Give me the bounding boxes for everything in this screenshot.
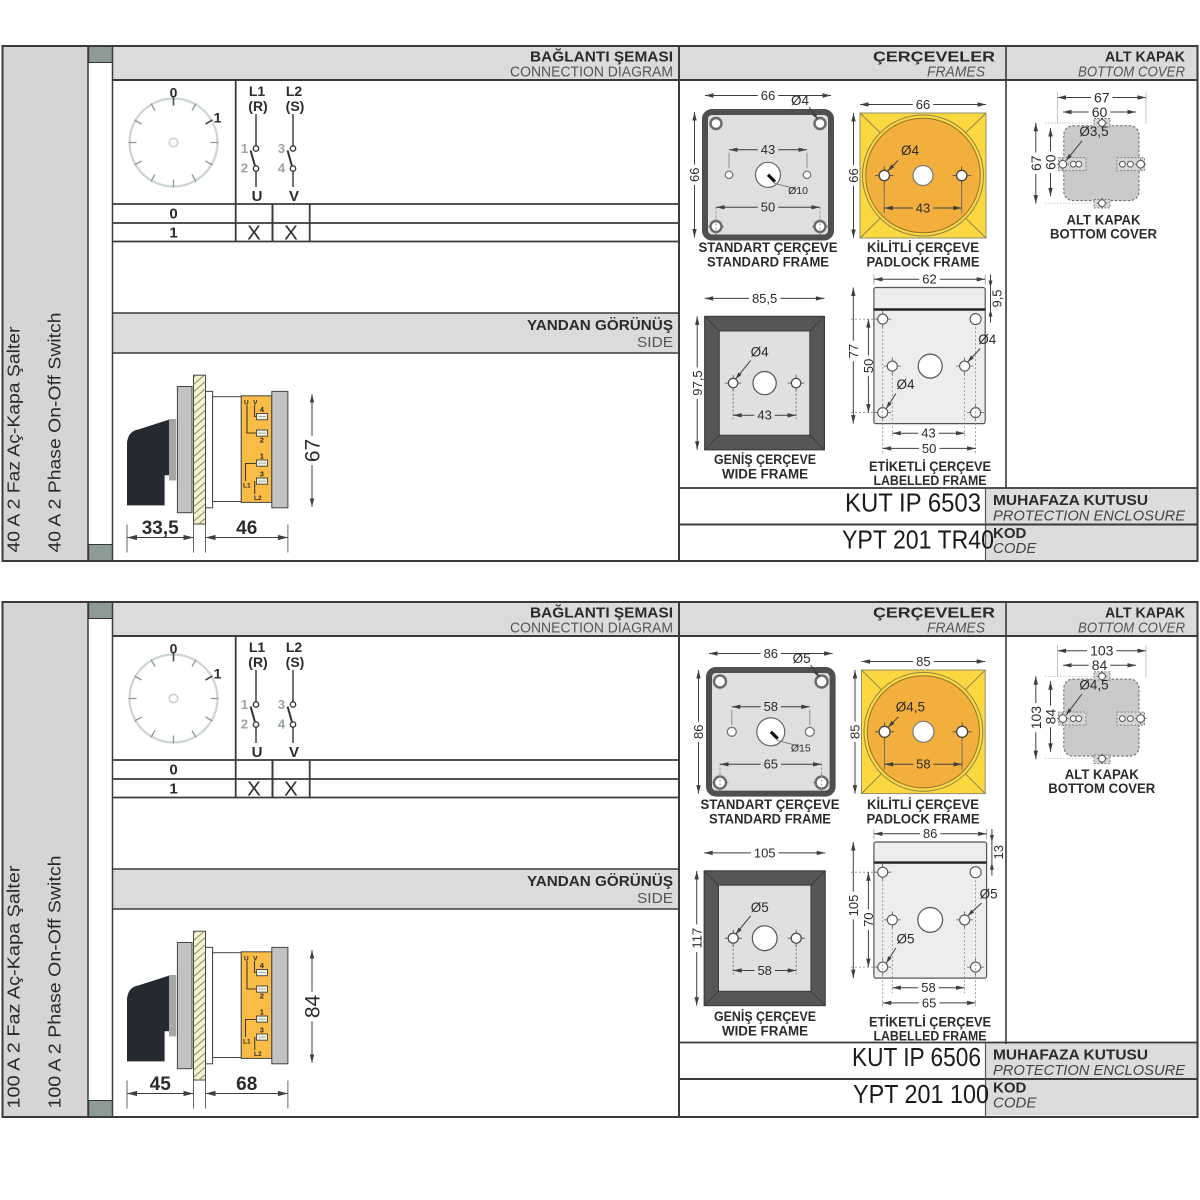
svg-text:1: 1 — [241, 697, 248, 712]
svg-text:0: 0 — [169, 206, 177, 223]
svg-text:60: 60 — [1092, 104, 1108, 120]
svg-text:LABELLED FRAME: LABELLED FRAME — [874, 473, 987, 488]
svg-text:Ø4: Ø4 — [901, 143, 920, 158]
svg-text:86: 86 — [764, 646, 778, 661]
svg-text:YANDAN GÖRÜNÜŞ: YANDAN GÖRÜNÜŞ — [527, 317, 673, 334]
svg-text:(R): (R) — [248, 98, 267, 114]
svg-text:ETİKETLİ ÇERÇEVE: ETİKETLİ ÇERÇEVE — [869, 459, 991, 474]
svg-text:9,5: 9,5 — [990, 289, 1005, 307]
svg-text:L1: L1 — [249, 83, 266, 99]
svg-text:Ø15: Ø15 — [791, 742, 811, 754]
svg-text:117: 117 — [689, 928, 704, 949]
svg-text:L2: L2 — [254, 1051, 262, 1058]
svg-text:13: 13 — [991, 845, 1006, 859]
svg-text:3: 3 — [260, 470, 264, 479]
svg-text:BOTTOM COVER: BOTTOM COVER — [1048, 781, 1155, 796]
svg-text:50: 50 — [761, 200, 775, 215]
svg-text:STANDART ÇERÇEVE: STANDART ÇERÇEVE — [699, 240, 838, 255]
svg-text:Ø4,5: Ø4,5 — [896, 699, 925, 714]
svg-text:L2: L2 — [286, 83, 303, 99]
svg-text:U: U — [252, 188, 263, 205]
svg-text:L2: L2 — [286, 639, 303, 655]
svg-text:(S): (S) — [286, 654, 305, 670]
svg-text:Ø4: Ø4 — [751, 345, 770, 360]
svg-text:GENİŞ ÇERÇEVE: GENİŞ ÇERÇEVE — [714, 452, 816, 467]
svg-text:100 A 2 Faz Aç-Kapa Şalter: 100 A 2 Faz Aç-Kapa Şalter — [4, 865, 24, 1108]
svg-text:KİLİTLİ ÇERÇEVE: KİLİTLİ ÇERÇEVE — [867, 797, 979, 812]
svg-text:X: X — [247, 778, 261, 801]
svg-text:ALT KAPAK: ALT KAPAK — [1067, 213, 1141, 228]
svg-text:FRAMES: FRAMES — [927, 64, 985, 81]
svg-text:50: 50 — [922, 441, 936, 456]
svg-text:66: 66 — [846, 168, 861, 182]
svg-text:1: 1 — [241, 141, 248, 156]
svg-text:70: 70 — [861, 912, 876, 926]
svg-text:U: U — [252, 744, 263, 761]
svg-text:58: 58 — [757, 963, 771, 978]
svg-text:KUT IP 6503: KUT IP 6503 — [845, 488, 981, 518]
svg-text:YANDAN GÖRÜNÜŞ: YANDAN GÖRÜNÜŞ — [527, 873, 673, 890]
svg-text:CODE: CODE — [993, 1095, 1037, 1112]
svg-text:46: 46 — [236, 518, 257, 539]
svg-text:100 A 2 Phase On-Off Switch: 100 A 2 Phase On-Off Switch — [45, 856, 65, 1109]
svg-text:WIDE FRAME: WIDE FRAME — [722, 467, 808, 482]
svg-text:Ø5: Ø5 — [793, 651, 811, 666]
svg-text:SIDE: SIDE — [637, 334, 673, 351]
svg-text:58: 58 — [921, 980, 935, 995]
svg-text:85: 85 — [916, 654, 930, 669]
svg-text:3: 3 — [278, 141, 285, 156]
svg-text:58: 58 — [916, 757, 930, 772]
svg-text:45: 45 — [150, 1074, 172, 1095]
svg-text:1: 1 — [169, 781, 177, 798]
svg-text:Ø4: Ø4 — [791, 93, 810, 108]
svg-text:BOTTOM COVER: BOTTOM COVER — [1078, 620, 1185, 637]
svg-text:X: X — [284, 778, 298, 801]
svg-text:66: 66 — [687, 168, 702, 182]
svg-text:FRAMES: FRAMES — [927, 620, 985, 637]
svg-text:1: 1 — [214, 666, 222, 682]
svg-text:1: 1 — [169, 225, 177, 242]
svg-text:L1: L1 — [243, 1039, 251, 1046]
svg-text:YPT 201 100: YPT 201 100 — [853, 1079, 989, 1109]
svg-text:66: 66 — [916, 97, 930, 112]
svg-text:BOTTOM COVER: BOTTOM COVER — [1050, 227, 1157, 242]
svg-text:2: 2 — [241, 717, 248, 732]
svg-text:(S): (S) — [286, 98, 305, 114]
svg-text:1: 1 — [214, 110, 222, 126]
svg-text:86: 86 — [923, 826, 937, 841]
svg-text:43: 43 — [921, 426, 935, 441]
svg-text:L2: L2 — [254, 495, 262, 502]
svg-text:40 A 2 Phase On-Off Switch: 40 A 2 Phase On-Off Switch — [45, 313, 65, 553]
svg-text:ALT KAPAK: ALT KAPAK — [1065, 767, 1139, 782]
svg-text:67: 67 — [302, 439, 325, 462]
svg-text:STANDARD FRAME: STANDARD FRAME — [709, 811, 831, 826]
svg-text:97,5: 97,5 — [690, 370, 705, 395]
svg-text:L1: L1 — [249, 639, 266, 655]
svg-text:105: 105 — [754, 845, 776, 860]
svg-text:STANDART ÇERÇEVE: STANDART ÇERÇEVE — [701, 797, 840, 812]
svg-text:85,5: 85,5 — [752, 291, 777, 306]
svg-text:84: 84 — [1092, 657, 1108, 673]
svg-text:KİLİTLİ ÇERÇEVE: KİLİTLİ ÇERÇEVE — [867, 240, 979, 255]
svg-text:Ø4,5: Ø4,5 — [1079, 678, 1108, 693]
svg-text:(R): (R) — [248, 654, 267, 670]
svg-text:KUT IP 6506: KUT IP 6506 — [852, 1042, 981, 1072]
svg-text:PADLOCK FRAME: PADLOCK FRAME — [867, 811, 980, 826]
svg-text:Ø5: Ø5 — [980, 886, 998, 901]
svg-text:0: 0 — [170, 641, 178, 657]
svg-text:ETİKETLİ ÇERÇEVE: ETİKETLİ ÇERÇEVE — [869, 1014, 991, 1029]
svg-text:CODE: CODE — [993, 540, 1037, 557]
svg-text:X: X — [284, 222, 298, 245]
svg-text:BOTTOM COVER: BOTTOM COVER — [1078, 64, 1185, 81]
svg-text:Ø10: Ø10 — [788, 185, 808, 197]
svg-text:84: 84 — [1043, 709, 1059, 725]
svg-text:V: V — [289, 744, 299, 761]
svg-text:85: 85 — [848, 725, 863, 739]
svg-text:0: 0 — [169, 762, 177, 779]
svg-text:4: 4 — [278, 161, 286, 176]
svg-text:3: 3 — [260, 1026, 264, 1035]
svg-text:GENİŞ ÇERÇEVE: GENİŞ ÇERÇEVE — [714, 1009, 816, 1024]
svg-text:4: 4 — [278, 717, 286, 732]
svg-text:84: 84 — [302, 995, 325, 1019]
svg-text:66: 66 — [761, 88, 775, 103]
svg-text:67: 67 — [1028, 155, 1044, 171]
svg-text:43: 43 — [757, 408, 771, 423]
svg-text:1: 1 — [260, 1008, 264, 1017]
svg-text:86: 86 — [691, 725, 706, 739]
svg-text:43: 43 — [916, 200, 930, 215]
svg-text:CONNECTION DIAGRAM: CONNECTION DIAGRAM — [510, 620, 673, 637]
svg-text:40 A 2 Faz Aç-Kapa Şalter: 40 A 2 Faz Aç-Kapa Şalter — [4, 326, 24, 552]
svg-text:1: 1 — [260, 452, 264, 461]
svg-text:MUHAFAZA KUTUSU: MUHAFAZA KUTUSU — [993, 1047, 1148, 1064]
svg-text:YPT 201 TR40: YPT 201 TR40 — [842, 525, 994, 555]
svg-text:PROTECTION ENCLOSURE: PROTECTION ENCLOSURE — [993, 508, 1186, 525]
svg-text:WIDE FRAME: WIDE FRAME — [722, 1023, 808, 1038]
svg-text:Ø4: Ø4 — [896, 377, 915, 392]
svg-text:62: 62 — [922, 272, 936, 287]
svg-text:0: 0 — [170, 85, 178, 101]
svg-text:MUHAFAZA KUTUSU: MUHAFAZA KUTUSU — [993, 492, 1148, 509]
svg-text:Ø3,5: Ø3,5 — [1079, 124, 1108, 139]
svg-text:58: 58 — [764, 699, 778, 714]
svg-text:Ø5: Ø5 — [751, 900, 769, 915]
svg-text:77: 77 — [846, 344, 861, 358]
svg-text:V: V — [253, 956, 258, 963]
svg-text:43: 43 — [761, 142, 775, 157]
svg-text:3: 3 — [278, 697, 285, 712]
svg-text:PADLOCK FRAME: PADLOCK FRAME — [867, 255, 980, 270]
svg-text:33,5: 33,5 — [142, 518, 179, 539]
svg-text:V: V — [253, 400, 258, 407]
svg-text:U: U — [244, 400, 249, 407]
svg-text:L1: L1 — [243, 483, 251, 490]
svg-text:105: 105 — [846, 895, 861, 917]
svg-text:X: X — [247, 222, 261, 245]
svg-text:65: 65 — [764, 757, 778, 772]
svg-text:CONNECTION DIAGRAM: CONNECTION DIAGRAM — [510, 64, 673, 81]
svg-text:60: 60 — [1043, 154, 1059, 170]
svg-text:PROTECTION ENCLOSURE: PROTECTION ENCLOSURE — [993, 1062, 1186, 1079]
svg-text:Ø5: Ø5 — [896, 932, 914, 947]
svg-text:STANDARD FRAME: STANDARD FRAME — [707, 255, 829, 270]
svg-text:65: 65 — [922, 995, 936, 1010]
svg-text:50: 50 — [861, 359, 876, 373]
svg-text:V: V — [289, 188, 299, 205]
svg-text:2: 2 — [241, 161, 248, 176]
svg-text:2: 2 — [260, 436, 264, 445]
svg-text:Ø4: Ø4 — [978, 332, 997, 347]
svg-text:SIDE: SIDE — [637, 890, 673, 907]
svg-text:U: U — [244, 956, 249, 963]
svg-text:2: 2 — [260, 992, 264, 1001]
svg-text:68: 68 — [236, 1074, 257, 1095]
svg-text:103: 103 — [1028, 706, 1044, 730]
